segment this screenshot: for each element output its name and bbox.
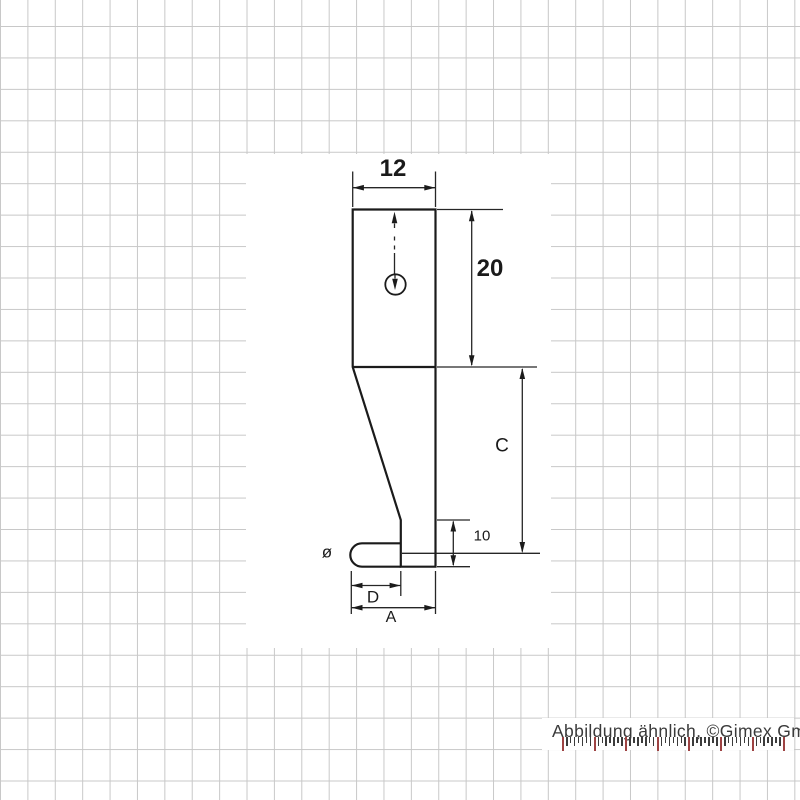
part-outline bbox=[350, 210, 435, 567]
product-image: 12 20 C 10 ø D A Abbildung ähnlich, ©Gim… bbox=[0, 0, 800, 800]
dimension-label-12: 12 bbox=[380, 157, 407, 181]
dimension-arrowheads bbox=[352, 185, 526, 611]
dimension-label-c: C bbox=[495, 437, 509, 456]
dimension-label-10: 10 bbox=[474, 529, 491, 544]
dimension-label-20: 20 bbox=[477, 257, 504, 281]
scale-ruler-icon bbox=[562, 737, 786, 751]
probe-tip bbox=[350, 543, 401, 566]
diameter-symbol: ø bbox=[322, 544, 332, 561]
dimension-lines bbox=[351, 172, 540, 615]
technical-drawing bbox=[246, 154, 551, 648]
drawing-canvas bbox=[246, 154, 551, 648]
dimension-label-a: A bbox=[386, 610, 397, 626]
dimension-label-d: D bbox=[367, 589, 379, 606]
